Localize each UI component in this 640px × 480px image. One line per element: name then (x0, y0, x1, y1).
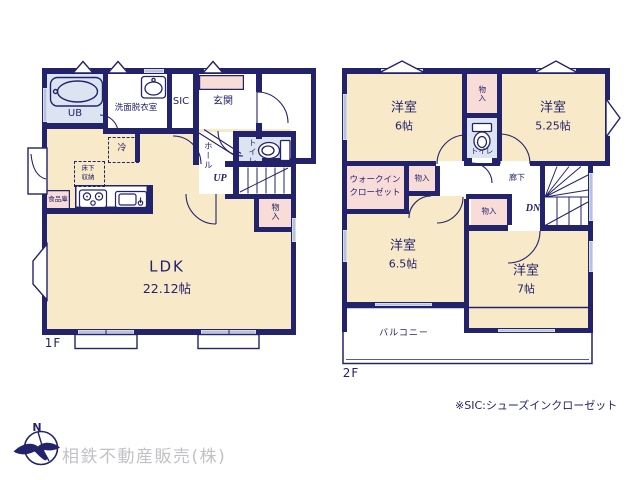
sic-note: ※SIC:シューズインクローゼット (455, 397, 617, 413)
label-closet-2f-top: 物入 (478, 86, 486, 103)
bathtub-icon (51, 78, 103, 107)
label-bedroom65-size: 6.5帖 (389, 259, 418, 270)
label-ldk: LDK (149, 260, 185, 275)
label-bedroom7: 洋室 (513, 265, 539, 278)
bay-window (198, 335, 259, 349)
label-dn: DN (526, 204, 540, 214)
label-bedroom6: 洋室 (391, 102, 417, 115)
vent-triangle (108, 62, 128, 74)
vent-triangle (73, 62, 93, 74)
compass-icon (14, 432, 61, 465)
label-balcony: バルコニー (379, 330, 429, 339)
company-watermark: 相鉄不動産販売(株) (62, 442, 226, 467)
washbasin-icon (142, 77, 166, 99)
stairs-1f (240, 168, 288, 194)
bay-window-left (33, 244, 47, 300)
label-toilet-1f: トイレ (248, 139, 256, 166)
label-bedroom65: 洋室 (390, 240, 416, 253)
label-floor-1f: 1F (45, 337, 62, 349)
stairs-2f (545, 167, 588, 226)
label-hall: ホール (203, 142, 212, 171)
label-up: UP (213, 174, 226, 184)
label-closet-2f-south: 物入 (482, 207, 497, 215)
label-sic: SIC (173, 97, 189, 107)
label-closet-2f-mid: 物入 (415, 174, 430, 182)
label-bedroom525: 洋室 (540, 102, 566, 115)
label-floor-2f: 2F (343, 367, 360, 379)
label-ub: UB (68, 109, 82, 119)
label-corridor: 廊下 (509, 174, 525, 182)
compass-north-label: N (32, 421, 41, 434)
label-fridge: 冷 (117, 145, 126, 154)
vent-triangle (203, 62, 223, 74)
vent-triangle (379, 61, 425, 73)
label-bedroom7-size: 7帖 (517, 284, 535, 295)
label-bedroom6-size: 6帖 (395, 121, 413, 132)
stove-icon (80, 190, 107, 208)
label-bedroom525-size: 5.25帖 (535, 121, 571, 132)
kitchen-sink-icon (116, 192, 147, 208)
bay-window-right (606, 99, 620, 137)
label-underfloor-2: 収納 (82, 174, 95, 181)
toilet-icon-1f (259, 141, 291, 161)
label-wic-1: ウォークイン (349, 176, 400, 185)
label-wic-2: クローゼット (349, 189, 400, 198)
label-genkan: 玄関 (213, 97, 233, 107)
bay-window (75, 335, 137, 349)
label-washroom: 洗面脱衣室 (115, 104, 158, 113)
label-underfloor-1: 床下 (82, 165, 95, 172)
label-toilet-2f: トイレ (471, 147, 494, 155)
floorplan-canvas: N UB 洗面脱衣室 SIC 玄関 ホール トイレ UP 物入 冷 床下 収納 … (0, 0, 640, 480)
label-ldk-size: 22.12帖 (143, 283, 191, 296)
vent-triangle (534, 61, 578, 73)
label-pantry: 食品庫 (48, 196, 68, 203)
label-closet-1f: 物入 (271, 203, 279, 221)
